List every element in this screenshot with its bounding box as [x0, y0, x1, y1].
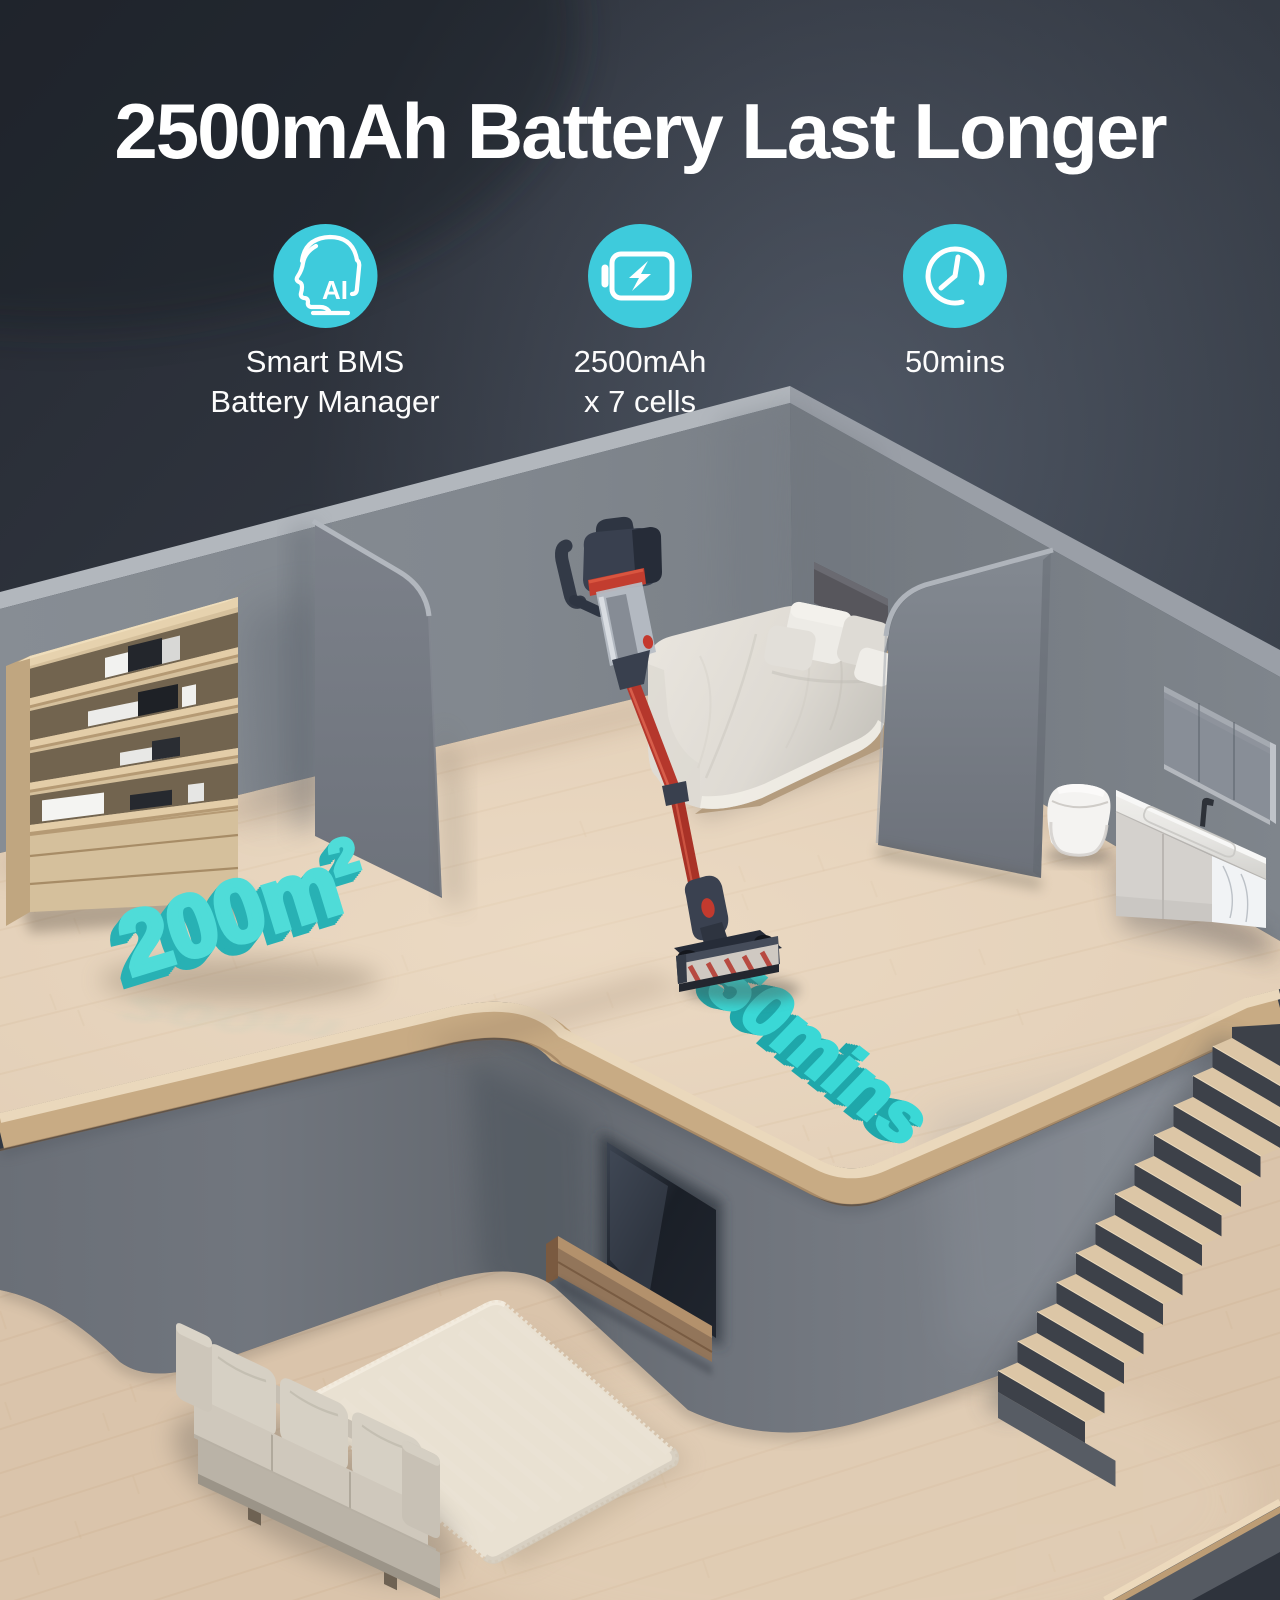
- svg-text:Battery Manager: Battery Manager: [210, 384, 439, 419]
- svg-text:50mins: 50mins: [905, 344, 1005, 379]
- svg-text:x 7 cells: x 7 cells: [584, 384, 696, 419]
- svg-text:2500mAh Battery Last Longer: 2500mAh Battery Last Longer: [114, 87, 1167, 175]
- svg-text:AI: AI: [322, 275, 348, 305]
- svg-text:Smart BMS: Smart BMS: [246, 344, 404, 379]
- svg-text:2500mAh: 2500mAh: [574, 344, 707, 379]
